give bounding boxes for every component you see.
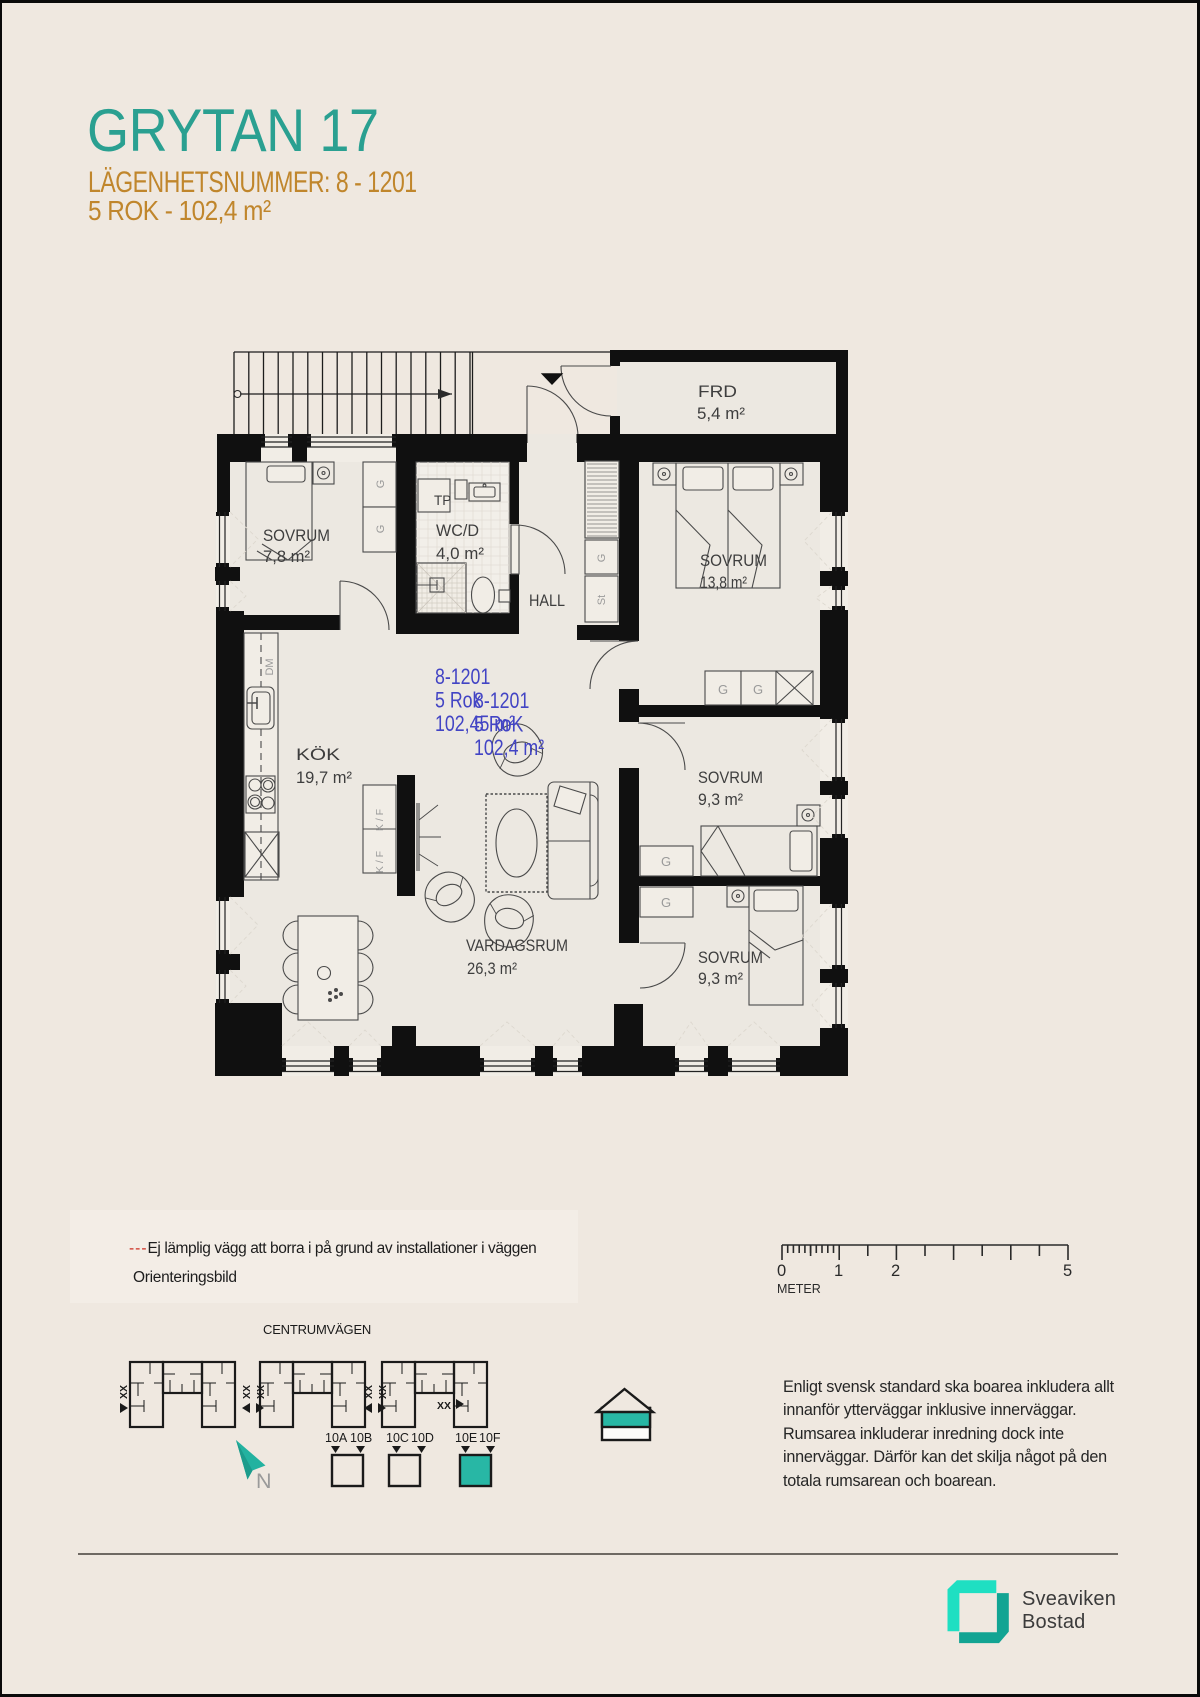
svg-text:0: 0: [777, 1262, 786, 1280]
svg-text:13,8 m²: 13,8 m²: [700, 573, 747, 592]
svg-text:1: 1: [834, 1262, 843, 1280]
svg-text:4,0 m²: 4,0 m²: [436, 544, 484, 563]
svg-text:2: 2: [891, 1262, 900, 1280]
svg-text:XX: XX: [118, 1385, 130, 1399]
svg-text:10A: 10A: [325, 1431, 348, 1445]
svg-text:10D: 10D: [411, 1431, 434, 1445]
svg-text:G: G: [718, 682, 728, 697]
svg-text:DM: DM: [264, 658, 276, 675]
svg-text:10E: 10E: [455, 1431, 477, 1445]
svg-text:XX: XX: [437, 1400, 451, 1412]
svg-text:8-1201: 8-1201: [435, 665, 490, 689]
svg-text:KÖK: KÖK: [296, 745, 341, 764]
svg-text:SOVRUM: SOVRUM: [700, 551, 767, 570]
svg-text:SOVRUM: SOVRUM: [263, 526, 330, 545]
svg-text:G: G: [375, 525, 387, 534]
svg-text:XX: XX: [377, 1385, 389, 1399]
svg-text:5 RoK: 5 RoK: [474, 713, 524, 737]
svg-text:SOVRUM: SOVRUM: [698, 768, 763, 787]
svg-text:G: G: [753, 682, 763, 697]
svg-text:102,4 m²: 102,4 m²: [474, 736, 544, 760]
svg-text:19,7 m²: 19,7 m²: [296, 768, 352, 787]
svg-text:WC/D: WC/D: [436, 521, 479, 540]
svg-text:TP: TP: [434, 493, 451, 508]
svg-text:K / F: K / F: [374, 851, 386, 873]
svg-text:K / F: K / F: [374, 809, 386, 831]
svg-text:9,3 m²: 9,3 m²: [698, 790, 743, 809]
svg-text:5,4 m²: 5,4 m²: [697, 404, 745, 423]
svg-text:St: St: [596, 595, 608, 605]
svg-text:XX: XX: [241, 1385, 253, 1399]
svg-text:10C: 10C: [386, 1431, 409, 1445]
svg-text:10F: 10F: [479, 1431, 501, 1445]
svg-text:G: G: [661, 854, 671, 869]
svg-text:HALL: HALL: [529, 591, 565, 610]
svg-text:G: G: [375, 480, 387, 489]
svg-text:26,3 m²: 26,3 m²: [467, 959, 517, 978]
svg-text:XX: XX: [363, 1385, 375, 1399]
svg-text:XX: XX: [255, 1385, 267, 1399]
svg-text:G: G: [596, 554, 608, 563]
svg-text:G: G: [661, 895, 671, 910]
svg-text:8-1201: 8-1201: [474, 689, 529, 713]
svg-text:10B: 10B: [350, 1431, 372, 1445]
svg-text:METER: METER: [777, 1282, 821, 1296]
svg-text:FRD: FRD: [698, 382, 737, 401]
svg-text:SOVRUM: SOVRUM: [698, 948, 763, 967]
svg-text:9,3 m²: 9,3 m²: [698, 969, 743, 988]
svg-text:VARDAGSRUM: VARDAGSRUM: [466, 936, 568, 955]
svg-text:N: N: [256, 1469, 272, 1493]
svg-text:7,8 m²: 7,8 m²: [263, 547, 310, 566]
svg-text:5: 5: [1063, 1262, 1072, 1280]
